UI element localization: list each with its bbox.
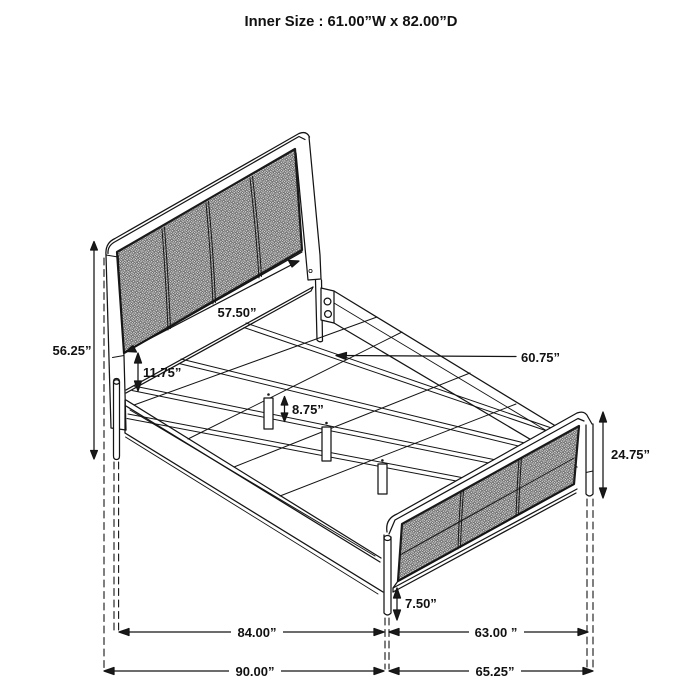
svg-text:84.00”: 84.00” (237, 625, 276, 640)
svg-text:8.75”: 8.75” (292, 402, 324, 417)
svg-text:63.00 ”: 63.00 ” (475, 625, 518, 640)
svg-text:65.25”: 65.25” (475, 664, 514, 679)
svg-text:7.50”: 7.50” (405, 596, 437, 611)
svg-text:11.75”: 11.75” (143, 365, 181, 380)
svg-text:90.00”: 90.00” (235, 664, 274, 679)
svg-text:56.25”: 56.25” (52, 343, 91, 358)
svg-text:60.75”: 60.75” (521, 350, 560, 365)
svg-text:24.75”: 24.75” (611, 447, 650, 462)
svg-text:Inner Size : 61.00”W x 82.00”D: Inner Size : 61.00”W x 82.00”D (244, 14, 457, 30)
svg-text:57.50”: 57.50” (217, 305, 256, 320)
